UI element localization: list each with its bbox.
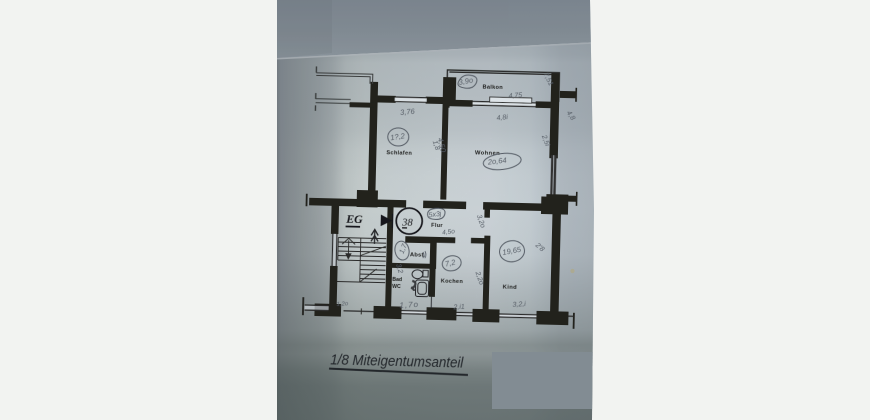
svg-text:EG: EG bbox=[345, 212, 363, 226]
svg-text:4,5o: 4,5o bbox=[442, 228, 456, 236]
svg-text:1,2o: 1,2o bbox=[336, 301, 349, 308]
svg-text:WC: WC bbox=[392, 284, 401, 290]
svg-text:4,75: 4,75 bbox=[508, 92, 522, 100]
svg-text:1/8 Miteigentumsanteil: 1/8 Miteigentumsanteil bbox=[330, 351, 464, 371]
svg-text:3,76: 3,76 bbox=[400, 107, 416, 117]
svg-text:3,2,i: 3,2,i bbox=[512, 301, 526, 309]
svg-text:Kochen: Kochen bbox=[441, 279, 464, 286]
svg-text:1,7o: 1,7o bbox=[399, 300, 419, 310]
svg-text:Flur: Flur bbox=[431, 223, 443, 229]
svg-text:Schlafen: Schlafen bbox=[386, 150, 412, 157]
svg-text:4,8i: 4,8i bbox=[496, 114, 508, 122]
svg-text:Balkon: Balkon bbox=[482, 85, 503, 92]
svg-text:Bad: Bad bbox=[392, 277, 402, 283]
svg-text:38: 38 bbox=[401, 218, 414, 229]
svg-text:Kind: Kind bbox=[503, 284, 518, 290]
svg-text:2,i1: 2,i1 bbox=[452, 304, 465, 312]
